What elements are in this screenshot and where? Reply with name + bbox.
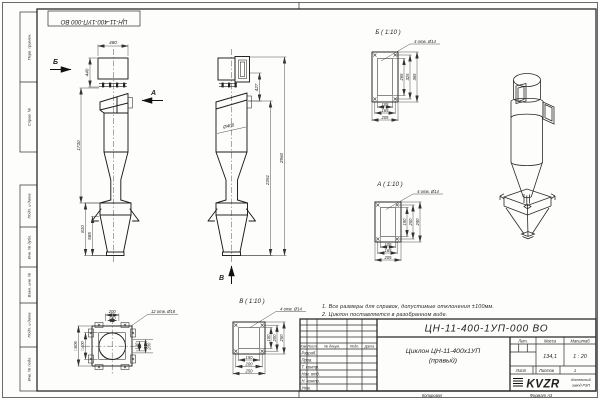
- format-label: Формат А3: [530, 393, 553, 398]
- tb-doc-number: ЦН-11-400-1УП-000 ВО: [425, 324, 549, 335]
- front-dim-440: 440: [85, 68, 90, 76]
- detail-a-dim-v2: 250: [408, 218, 413, 227]
- dim-480: 480: [98, 40, 128, 56]
- tb-row-nkontr: Н. контр.: [302, 379, 320, 384]
- left-label-inv-podl: Инв. № подл.: [27, 357, 32, 382]
- tb-col-podp: Подп.: [350, 345, 360, 349]
- tb-title-line1: Циклон ЦН-11-400х1УП: [406, 348, 480, 355]
- note-line-2: 2. Циклон поставляется в разобранном вид…: [321, 312, 448, 318]
- detail-v-dim-h2: 200: [245, 361, 254, 366]
- drawing-canvas: Перв. примен. Справ. № Подп. и дата Инв.…: [0, 0, 600, 400]
- plan-dim-200: 200: [108, 309, 117, 314]
- front-contour: [92, 58, 139, 256]
- left-column-top: Перв. примен. Справ. №: [20, 12, 37, 152]
- view-arrow-a: А: [142, 90, 163, 101]
- dim-440: 440: [85, 58, 99, 87]
- plan-dim-sq-outer: □606: [73, 341, 78, 351]
- side-view: Ø400 427 2351 2960 В: [208, 49, 287, 284]
- detail-a-dim-h1: 105: [385, 242, 393, 247]
- side-dim-diameter: Ø400: [222, 122, 235, 130]
- drawing-sheet: Перв. примен. Справ. № Подп. и дата Инв.…: [0, 0, 600, 400]
- front-dim-810: 810: [80, 225, 85, 233]
- tb-sheets-value: 1: [574, 368, 576, 373]
- detail-v-dim-h1: 150: [246, 355, 254, 360]
- detail-a-title: А ( 1:10 ): [376, 181, 402, 188]
- note-line-1: 1. Все размеры для справок, допустимые о…: [322, 304, 494, 310]
- tb-col-data: Дата: [364, 345, 374, 349]
- dim-1730: 1730: [76, 88, 100, 203]
- front-dim-480: 480: [109, 40, 117, 45]
- detail-a-dim-h2: 165: [385, 248, 393, 253]
- tb-col-ndoc: № докум.: [324, 345, 340, 349]
- company-name-line1: Котельный: [571, 378, 591, 382]
- dim-2960: 2960: [241, 57, 287, 256]
- detail-v-holes: 4 отв. Ø14: [280, 306, 302, 311]
- tb-row-prov: Пров.: [302, 358, 313, 363]
- detail-a-view: А ( 1:10 ) 4 отв. Ø14 190 250 290 105 16…: [375, 181, 443, 261]
- tb-row-tkontr: Т. контр.: [302, 365, 320, 370]
- side-dim-2351: 2351: [265, 174, 270, 186]
- detail-v-title: В ( 1:10 ): [239, 298, 264, 305]
- detail-v-dim-v1: 150: [266, 334, 271, 342]
- detail-b-dim-h2: 165: [382, 108, 390, 113]
- company-name-line2: завод РЭП: [571, 384, 590, 388]
- dim-585: 585: [87, 217, 106, 256]
- detail-a-holes: 4 отв. Ø14: [417, 189, 439, 194]
- technical-notes: 1. Все размеры для справок, допустимые о…: [321, 304, 494, 318]
- detail-b-view: Б ( 1:10 ) 4 отв. Ø14 265 325 365 105 16…: [372, 29, 440, 121]
- front-view: 480 440 1730 810 585 Б А: [50, 40, 163, 262]
- left-label-inv-dubl: Инв. № дубл.: [27, 235, 32, 260]
- detail-v-dim-v3: 250: [279, 334, 284, 343]
- view-label-a: А: [150, 90, 156, 97]
- view-label-b: Б: [53, 59, 58, 66]
- tb-row-razrab: Разраб.: [302, 351, 317, 356]
- tb-title-line2: (правый): [429, 357, 457, 365]
- tb-sheet-label: Лист: [515, 368, 527, 373]
- copied-label: Копировал: [422, 393, 443, 398]
- view-arrow-v: В: [219, 266, 232, 284]
- left-label-podp-data-1: Подп. и дата: [27, 193, 32, 219]
- left-label-sprav-n: Справ. №: [27, 107, 32, 126]
- detail-v-view: В ( 1:10 ) 4 отв. Ø14 150 200 250 150 20…: [233, 298, 306, 375]
- top-stamp: ЦН-11-400-1УП-000 ВО: [48, 11, 140, 26]
- tb-col-list: Лист: [306, 345, 316, 349]
- left-column-bottom: Подп. и дата Инв. № дубл. Взам. инв. № П…: [20, 185, 37, 391]
- tb-mass-label: Масса: [544, 339, 557, 344]
- dim-427: 427: [248, 73, 262, 101]
- view-label-v: В: [219, 275, 224, 282]
- plan-dims: 200 140 12 отв. Ø18 140 200 □606 □400: [73, 309, 178, 366]
- tb-row-utv: Утв.: [302, 386, 311, 391]
- detail-b-title: Б ( 1:10 ): [375, 29, 400, 36]
- left-label-vzam-inv: Взам. инв. №: [27, 272, 32, 297]
- front-dim-1730: 1730: [76, 140, 81, 151]
- tb-row-nachotd: Нач. отд.: [302, 372, 320, 377]
- company-logo: KVZR Котельный завод РЭП: [513, 378, 591, 391]
- detail-a-dim-v3: 290: [415, 218, 420, 227]
- detail-b-holes: 4 отв. Ø14: [414, 39, 436, 44]
- detail-a-dim-v1: 190: [402, 218, 407, 226]
- plan-dim-r200: 200: [146, 342, 151, 351]
- plan-holes-label: 12 отв. Ø18: [151, 309, 176, 314]
- left-label-podp-data-2: Подп. и дата: [27, 312, 32, 338]
- title-block: Изм. Лист № докум. Подп. Дата Разраб. Пр…: [300, 319, 596, 391]
- front-dim-585: 585: [87, 232, 92, 240]
- tb-sheets-label: Листов: [538, 368, 555, 373]
- side-dim-2960: 2960: [279, 152, 284, 164]
- side-dim-427: 427: [254, 83, 259, 91]
- tb-col-izm: Изм.: [300, 345, 308, 349]
- detail-v-dim-v2: 200: [272, 334, 277, 343]
- detail-b-dim-v1: 265: [399, 73, 404, 82]
- detail-v-dim-h3: 250: [245, 368, 254, 373]
- top-stamp-number: ЦН-11-400-1УП-000 ВО: [60, 18, 127, 25]
- detail-b-dim-v3: 365: [412, 73, 417, 81]
- tb-scale-label: Масштаб: [570, 339, 590, 344]
- tb-mass-value: 134,1: [543, 354, 557, 360]
- detail-a-dim-h3: 205: [384, 255, 393, 260]
- left-label-perv-primen: Перв. примен.: [27, 34, 32, 61]
- dim-810: 810: [80, 203, 106, 256]
- detail-b-dim-h1: 105: [382, 102, 390, 107]
- iso-view: [500, 74, 555, 239]
- plan-dim-sq-inner: □400: [80, 341, 85, 351]
- dim-2351: 2351: [241, 101, 273, 256]
- plan-view: 200 140 12 отв. Ø18 140 200 □606 □400: [73, 309, 178, 374]
- detail-b-dim-v2: 325: [405, 73, 410, 81]
- view-arrow-b: Б: [50, 59, 71, 70]
- tb-scale-value: 1 : 20: [573, 354, 588, 360]
- plan-dim-140: 140: [109, 316, 117, 321]
- tb-lit-label: Лит.: [517, 339, 528, 344]
- company-logo-text: KVZR: [526, 379, 560, 391]
- detail-b-dim-h3: 205: [381, 115, 390, 120]
- plan-dim-r140: 140: [134, 342, 139, 350]
